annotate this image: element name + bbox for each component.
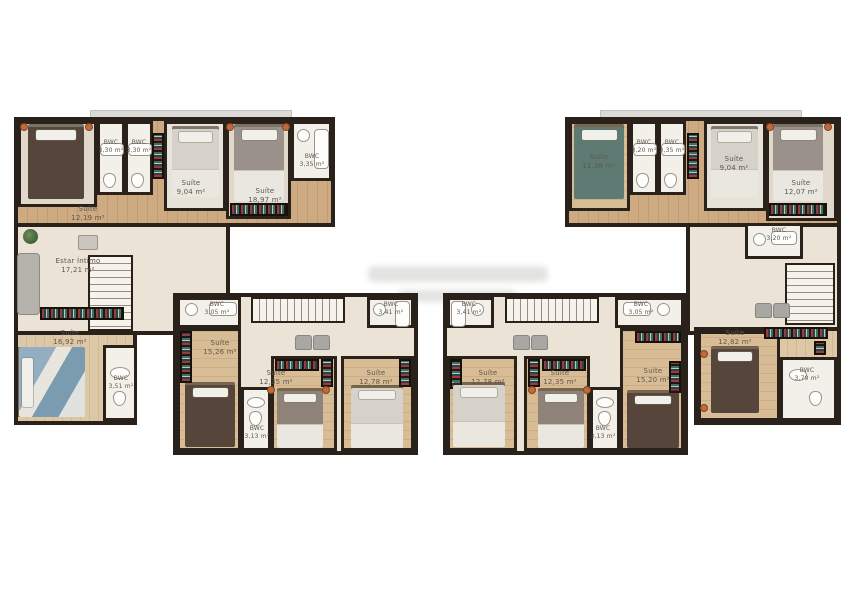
wardrobe [764,327,828,339]
room-name: BWC [657,139,687,147]
lamp [283,124,289,130]
lamp [86,124,92,130]
room-area: 16,92 m² [44,338,96,347]
floor-plan-bottom-right: BWC3,41 m² BWC3,05 m² Suíte12,78 m² Suít… [443,293,688,455]
room-area: 12,82 m² [709,338,761,347]
room-label: Suíte12,78 m² [349,369,403,387]
room-label: BWC3,51 m² [102,375,140,391]
stairs [251,297,345,323]
wardrobe [321,359,333,387]
sofa [17,253,40,315]
room-area: 12,07 m² [771,188,831,197]
room-area: 3,51 m² [102,383,140,391]
room-label: Suíte11,38 m² [573,153,625,171]
bed [28,127,84,199]
room-label: Estar Íntimo17,21 m² [48,257,108,275]
room-area: 15,26 m² [195,348,245,357]
room-name: BWC [629,139,659,147]
room-name: BWC [585,425,621,433]
room-label: BWC3,35 m² [292,153,332,169]
sink [297,129,310,142]
room-name: BWC [102,375,140,383]
armchair [531,335,548,350]
room-label: BWC3,41 m² [369,301,413,317]
room-area: 3,35 m² [292,161,332,169]
room-area: 3,05 m² [619,309,663,317]
room-area: 3,13 m² [585,433,621,441]
sink [596,397,614,408]
room-name: BWC [785,367,829,375]
lamp [529,387,535,393]
room-label: BWC3,30 m² [96,139,126,155]
armchair [773,303,790,318]
plant [23,229,38,244]
room-name: Suíte [535,369,585,378]
lamp [767,124,773,130]
room-name: Suíte [573,153,625,162]
room-label: Suíte12,82 m² [709,329,761,347]
room-name: BWC [619,301,663,309]
room-name: Suíte [62,205,114,214]
room-label: BWC3,30 m² [124,139,154,155]
room-area: 3,20 m² [757,235,801,243]
room-area: 18,97 m² [238,196,292,205]
room-label: Suíte15,20 m² [627,367,679,385]
room-name: Suíte [166,179,216,188]
lamp [268,387,274,393]
room-area: 17,21 m² [48,266,108,275]
room-name: BWC [757,227,801,235]
sink [247,397,265,408]
room-area: 12,78 m² [461,378,515,387]
room-name: Suíte [238,187,292,196]
room-area: 3,30 m² [124,147,154,155]
bed [711,349,759,413]
room-label: BWC3,35 m² [657,139,687,155]
armchair [313,335,330,350]
room-label: BWC3,05 m² [619,301,663,317]
floorplans-image: Suíte12,19 m² BWC3,30 m² BWC3,30 m² Suít… [0,0,849,600]
room-name: BWC [292,153,332,161]
room-name: Suíte [195,339,245,348]
room-name: BWC [447,301,491,309]
lamp [323,387,329,393]
room-label: BWC3,20 m² [629,139,659,155]
room-name: Suíte [627,367,679,376]
wardrobe [635,331,681,343]
room-label: Suíte12,19 m² [62,205,114,223]
room-name: Estar Íntimo [48,257,108,266]
room-area: 3,30 m² [96,147,126,155]
room-label: Suíte12,35 m² [251,369,301,387]
lamp [227,124,233,130]
room-name: Suíte [709,329,761,338]
wardrobe [180,331,192,383]
armchair [755,303,772,318]
room-label: BWC3,13 m² [239,425,275,441]
room-label: Suíte9,04 m² [707,155,761,173]
room-area: 11,38 m² [573,162,625,171]
room-area: 3,41 m² [447,309,491,317]
bed [185,385,235,447]
wardrobe [40,307,124,320]
lamp [21,124,27,130]
bed [538,391,584,448]
stairs [505,297,599,323]
room-name: Suíte [44,329,96,338]
room-label: Suíte16,92 m² [44,329,96,347]
room-area: 3,13 m² [239,433,275,441]
lamp [701,405,707,411]
room-label: Suíte12,35 m² [535,369,585,387]
room-name: BWC [124,139,154,147]
wardrobe [687,133,699,179]
bed [19,347,85,417]
room-name: BWC [239,425,275,433]
room-label: BWC3,20 m² [757,227,801,243]
bed [351,388,403,448]
room-area: 12,19 m² [62,214,114,223]
room-name: Suíte [251,369,301,378]
watermark [368,266,548,282]
room-area: 12,35 m² [251,378,301,387]
room-name: Suíte [461,369,515,378]
room-area: 12,78 m² [349,378,403,387]
room-label: Suíte9,04 m² [166,179,216,197]
bed [627,393,679,448]
floor-plan-bottom-left: BWC3,05 m² BWC3,41 m² Suíte15,26 m² Suít… [173,293,418,455]
room-area: 9,04 m² [166,188,216,197]
room-area: 3,35 m² [657,147,687,155]
lamp [584,387,590,393]
room-label: BWC3,41 m² [447,301,491,317]
room-area: 3,41 m² [369,309,413,317]
room-name: BWC [369,301,413,309]
room-label: BWC3,05 m² [195,301,239,317]
room-name: BWC [195,301,239,309]
room-label: Suíte18,97 m² [238,187,292,205]
armchair [295,335,312,350]
stairs [785,263,835,325]
room-label: Suíte12,78 m² [461,369,515,387]
room-label: Suíte15,26 m² [195,339,245,357]
room-area: 9,04 m² [707,164,761,173]
room-name: Suíte [707,155,761,164]
room-area: 3,20 m² [629,147,659,155]
room-name: Suíte [349,369,403,378]
room-name: BWC [96,139,126,147]
lamp [825,124,831,130]
room-area: 3,79 m² [785,375,829,383]
wardrobe [814,341,826,355]
room-label: Suíte12,07 m² [771,179,831,197]
room-area: 3,05 m² [195,309,239,317]
coffee-table [78,235,98,250]
room-label: BWC3,79 m² [785,367,829,383]
room-area: 12,35 m² [535,378,585,387]
room-name: Suíte [771,179,831,188]
bed [453,385,505,447]
room-area: 15,20 m² [627,376,679,385]
wardrobe [769,203,827,216]
armchair [513,335,530,350]
lamp [701,351,707,357]
room-label: BWC3,13 m² [585,425,621,441]
bed [277,391,323,448]
